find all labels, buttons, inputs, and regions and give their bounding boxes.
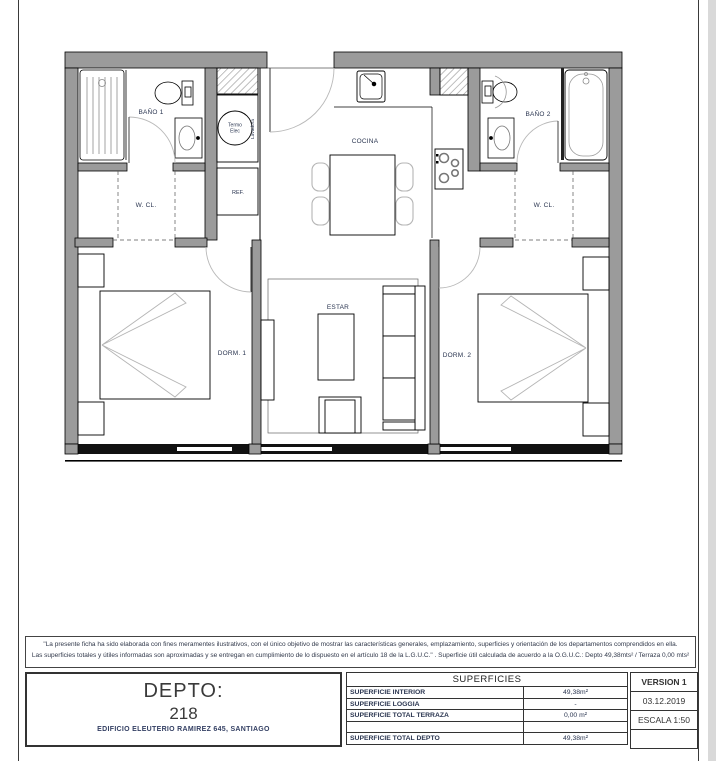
table-row: SUPERFICIE TOTAL TERRAZA 0,00 m² [346, 710, 628, 722]
armchair-icon [319, 397, 361, 433]
stove-icon [435, 149, 463, 189]
row-value: 0,00 m² [524, 710, 628, 722]
termo-label-2: Elec [230, 129, 240, 135]
disclaimer-box: "La presente ficha ha sido elaborada con… [25, 636, 696, 668]
bano1-door-arc [129, 117, 175, 163]
building-address: EDIFICIO ELEUTERIO RAMIREZ 645, SANTIAGO [27, 726, 340, 733]
superficies-table: SUPERFICIES SUPERFICIE INTERIOR 49,38m² … [346, 672, 628, 749]
bano2-door-arc [517, 121, 558, 163]
depto-title-block: DEPTO: 218 EDIFICIO ELEUTERIO RAMIREZ 64… [25, 672, 342, 747]
coffee-table-icon [318, 314, 354, 380]
kitchen-sink-icon [357, 71, 385, 102]
window-dorm1 [177, 447, 232, 451]
fridge-icon: REF. [217, 168, 258, 215]
disclaimer-line-1: "La presente ficha ha sido elaborada con… [26, 640, 695, 651]
version-label: VERSION 1 [630, 672, 698, 692]
lavadora-label: Lavadora [250, 119, 256, 139]
row-value: 49,38m² [524, 687, 628, 699]
version-block: VERSION 1 03.12.2019 ESCALA 1:50 [630, 672, 698, 749]
tub-partition [561, 68, 564, 160]
room-label-bano1: BAÑO 1 [138, 107, 163, 116]
dorm1-door-arc [206, 247, 251, 292]
empty-cell [630, 730, 698, 749]
sink-1-icon [175, 118, 202, 158]
superficies-title: SUPERFICIES [346, 672, 628, 687]
room-label-estar: ESTAR [327, 304, 349, 311]
sheet-border-right [698, 0, 699, 761]
row-label: SUPERFICIE TOTAL TERRAZA [346, 710, 524, 722]
row-value [524, 722, 628, 734]
nightstand-icon [583, 403, 609, 436]
depto-label: DEPTO: [27, 680, 340, 703]
sofa-icon [383, 286, 425, 430]
bathtub-icon [565, 70, 607, 160]
bed-2-icon [478, 294, 588, 402]
row-label: SUPERFICIE LOGGIA [346, 699, 524, 711]
table-row: SUPERFICIE INTERIOR 49,38m² [346, 687, 628, 699]
scale-label: ESCALA 1:50 [630, 711, 698, 730]
entry-door-arc [270, 68, 334, 132]
window-dorm2 [437, 447, 511, 451]
nightstand-icon [583, 257, 609, 290]
row-value: - [524, 699, 628, 711]
bottom-window-wall [65, 444, 622, 462]
shower-icon [80, 70, 126, 160]
toilet-2-icon [482, 76, 517, 108]
floor-plan: Termo Elec Lavadora REF. [62, 50, 624, 466]
row-label [346, 722, 524, 734]
row-value: 49,38m² [524, 733, 628, 745]
room-label-dorm1: DORM. 1 [218, 350, 247, 357]
dorm2-furniture [478, 257, 609, 436]
toilet-1-icon [155, 81, 193, 105]
window-estar [261, 447, 332, 451]
termo-closet: Termo Elec Lavadora [217, 95, 258, 162]
sink-2-icon [488, 118, 514, 158]
room-label-wcl2: W. CL. [534, 202, 555, 209]
room-label-wcl1: W. CL. [136, 202, 157, 209]
table-row-total: SUPERFICIE TOTAL DEPTO 49,38m² [346, 733, 628, 745]
room-label-cocina: COCINA [352, 138, 379, 145]
row-label: SUPERFICIE INTERIOR [346, 687, 524, 699]
depto-number: 218 [27, 704, 340, 724]
floorplan-sheet: { "sheet": { "disclaimer_line1": "\"La p… [0, 0, 716, 761]
ground-line [65, 460, 622, 462]
room-label-dorm2: DORM. 2 [443, 352, 472, 359]
shelf-icon [261, 320, 274, 400]
disclaimer-line-2: Las superficies totales y útiles informa… [26, 651, 695, 662]
ref-label: REF. [232, 190, 244, 196]
dining-table-icon [312, 155, 413, 235]
row-label: SUPERFICIE TOTAL DEPTO [346, 733, 524, 745]
nightstand-icon [78, 402, 104, 435]
dorm2-door-arc [439, 247, 480, 288]
date-label: 03.12.2019 [630, 692, 698, 711]
page-edge-band [708, 0, 716, 761]
nightstand-icon [78, 254, 104, 287]
sheet-border-left [18, 0, 19, 761]
dorm1-furniture [78, 254, 210, 435]
room-label-bano2: BAÑO 2 [525, 109, 550, 118]
table-row: SUPERFICIE LOGGIA - [346, 699, 628, 711]
table-row-empty [346, 722, 628, 734]
